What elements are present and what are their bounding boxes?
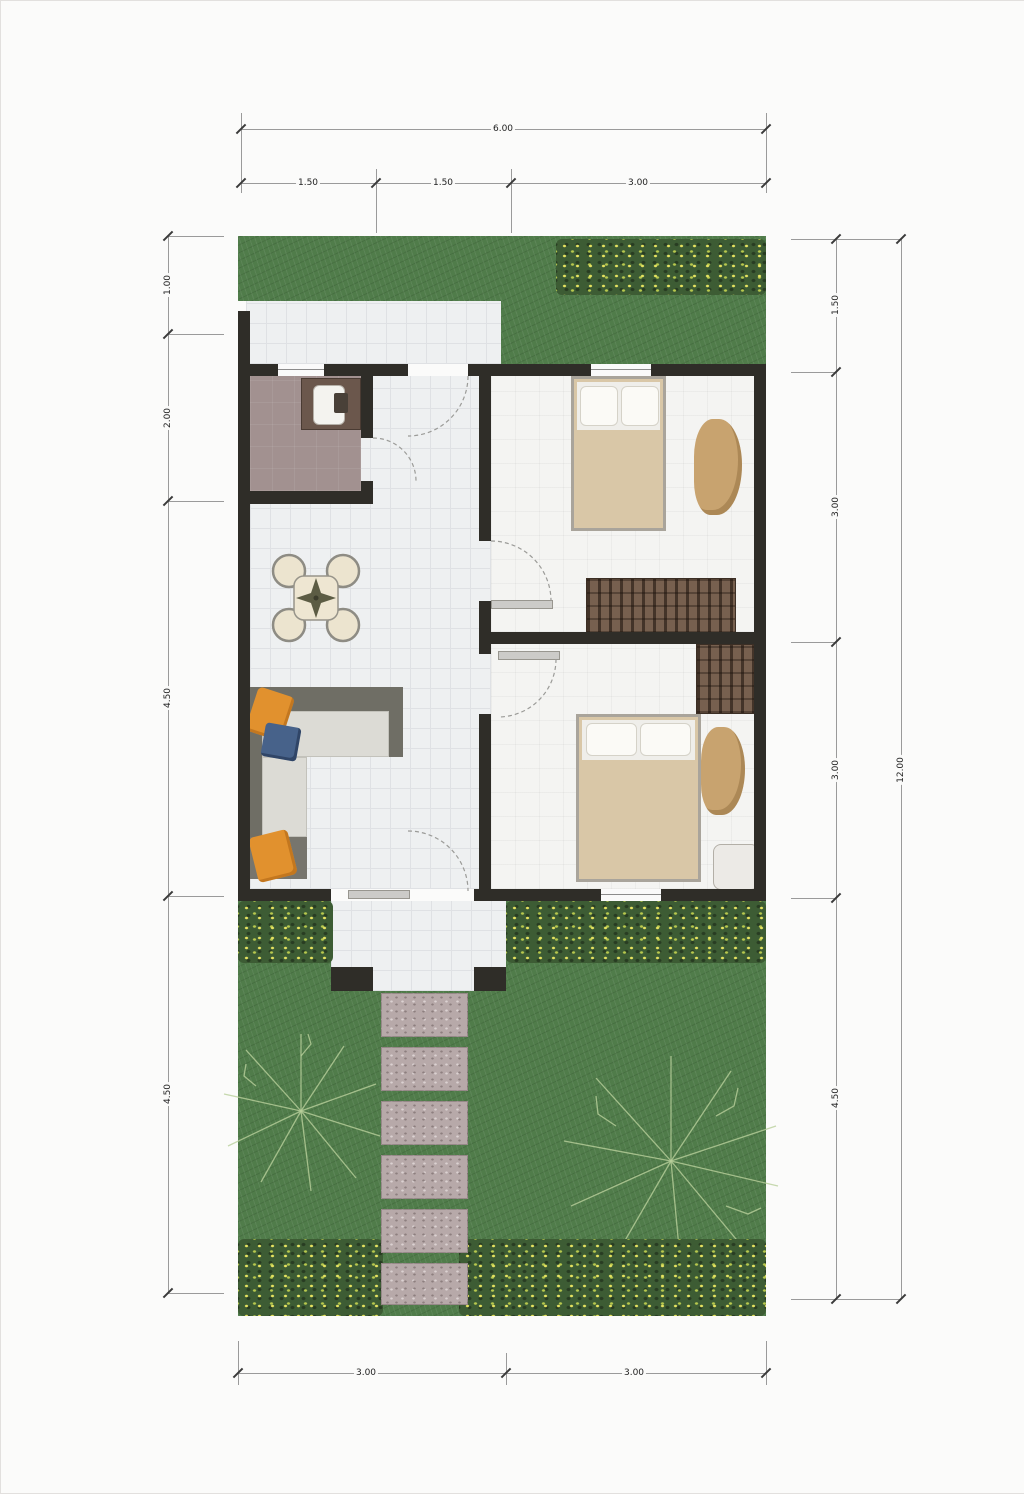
dim-label-right: 4.50 xyxy=(831,1086,841,1110)
window-front xyxy=(278,364,324,376)
dim-extension-line xyxy=(511,169,512,233)
dim-extension-line xyxy=(791,372,836,373)
dim-extension-line xyxy=(168,896,224,897)
bed-1-pillow xyxy=(621,386,659,426)
wall-front xyxy=(324,364,408,376)
door-swing-bedroom1 xyxy=(491,541,552,602)
front-porch xyxy=(246,301,501,364)
dim-extension-line xyxy=(791,898,836,899)
bed-2-pillow xyxy=(640,723,691,756)
dim-extension-line xyxy=(791,1299,901,1300)
wall-rear-right xyxy=(474,889,601,901)
stepping-stone xyxy=(381,1209,468,1253)
dim-label-right: 1.50 xyxy=(831,293,841,317)
sofa-seat-left xyxy=(262,757,307,837)
dim-label-top: 1.50 xyxy=(296,178,320,188)
wall-hall-bedrooms xyxy=(479,714,491,889)
flower-bush-street-left xyxy=(238,1239,383,1316)
sofa-cushion-navy xyxy=(260,722,301,762)
wall-right xyxy=(754,364,766,901)
dim-label-left: 1.00 xyxy=(163,273,173,297)
dim-label-left: 2.00 xyxy=(163,406,173,430)
door-swing-study xyxy=(373,438,417,482)
dim-extension-line xyxy=(238,1341,239,1385)
flower-bush-street-right xyxy=(459,1239,766,1316)
stepping-stone xyxy=(381,1101,468,1145)
dim-extension-line xyxy=(376,169,377,233)
dim-label-bottom: 3.00 xyxy=(622,1368,646,1378)
garden-tree-left xyxy=(216,1026,386,1196)
porch-pillar-left xyxy=(331,967,373,991)
stepping-stone xyxy=(381,1263,468,1305)
window-bedroom2 xyxy=(601,889,661,901)
dim-label-right: 3.00 xyxy=(831,495,841,519)
bed-1 xyxy=(571,376,666,531)
wall-bedroom-divider xyxy=(491,632,754,644)
porch-pillar-right xyxy=(474,967,506,991)
bedroom-2-chair xyxy=(713,844,759,890)
dimension-line-left xyxy=(168,236,169,1293)
dim-extension-line xyxy=(791,239,901,240)
sofa-arm-right xyxy=(389,687,403,757)
wall-left xyxy=(238,311,250,901)
door-swing-bedroom2 xyxy=(498,659,557,718)
dim-label-top: 3.00 xyxy=(626,178,650,188)
desk-monitor xyxy=(334,393,348,413)
floor-plan-page: 6.00 1.50 1.50 3.00 1.00 2.00 4.50 4.50 … xyxy=(0,0,1024,1494)
dim-label-left: 4.50 xyxy=(163,686,173,710)
wall-rear-right xyxy=(661,889,766,901)
flower-bush-rear-right xyxy=(506,901,766,963)
dim-extension-line xyxy=(168,334,224,335)
wall-hall-bedrooms xyxy=(479,601,491,654)
dim-label-top: 1.50 xyxy=(431,178,455,188)
stepping-stone xyxy=(381,1047,468,1091)
dim-extension-line xyxy=(766,1341,767,1385)
door-swing-front xyxy=(408,376,469,437)
door-swing-rear xyxy=(408,831,469,892)
wall-hall-bedrooms xyxy=(479,364,491,541)
door-leaf-rear xyxy=(348,890,410,899)
dim-extension-line xyxy=(168,1293,224,1294)
bed-2-pillow xyxy=(586,723,637,756)
dining-table-set xyxy=(266,548,366,648)
wall-front xyxy=(238,364,278,376)
bed-1-pillow xyxy=(580,386,618,426)
dim-label-top-overall: 6.00 xyxy=(491,124,515,134)
window-bedroom1 xyxy=(591,364,651,376)
wall-study-right xyxy=(361,376,373,438)
stepping-stone xyxy=(381,1155,468,1199)
dim-extension-line xyxy=(168,236,224,237)
dim-extension-line xyxy=(168,501,224,502)
wall-study-bottom xyxy=(238,491,373,504)
flower-bush-rear-left xyxy=(238,901,333,963)
bedroom-1-wardrobe xyxy=(586,578,736,634)
bedroom-2-wardrobe xyxy=(696,644,756,714)
bed-2 xyxy=(576,714,701,882)
dim-label-right-overall: 12.00 xyxy=(896,755,906,785)
dim-label-left: 4.50 xyxy=(163,1082,173,1106)
wall-front-bedroom1 xyxy=(491,364,591,376)
flower-bush-front-right xyxy=(556,239,766,295)
wall-front-bedroom1 xyxy=(651,364,766,376)
wall-rear-left xyxy=(238,889,331,901)
dim-extension-line xyxy=(791,642,836,643)
dim-label-right: 3.00 xyxy=(831,758,841,782)
front-garden-left xyxy=(238,236,501,301)
stepping-stone xyxy=(381,993,468,1037)
dim-label-bottom: 3.00 xyxy=(354,1368,378,1378)
